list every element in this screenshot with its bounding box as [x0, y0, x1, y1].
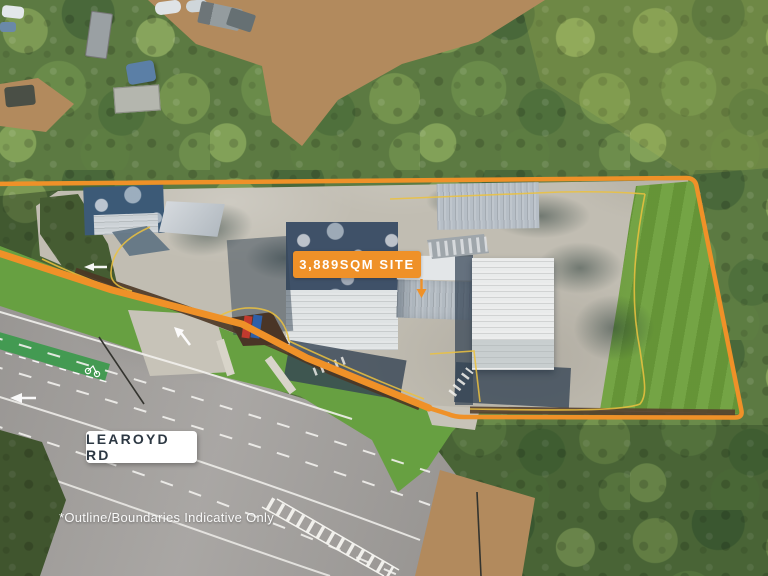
- yellow-line-frontage: [289, 341, 424, 399]
- footpath: [268, 358, 293, 392]
- light-pole: [477, 492, 481, 576]
- site-arrow: [84, 263, 107, 271]
- linework-overlay: [0, 0, 768, 576]
- pedestrian-crossing: [452, 370, 470, 394]
- yellow-line-west-corner: [111, 227, 150, 291]
- median-island-edge: [262, 507, 384, 576]
- label-leader-arrowhead: [417, 289, 427, 298]
- aerial-photo: 3,889SQM SITE LEAROYD RD *Outline/Bounda…: [0, 0, 768, 576]
- site-area-label: 3,889SQM SITE: [293, 251, 421, 278]
- yellow-line-north: [390, 192, 645, 199]
- yellow-line-lawn-curb: [470, 194, 645, 410]
- road-name-label: LEAROYD RD: [86, 431, 197, 463]
- disclaimer-text: *Outline/Boundaries Indicative Only: [59, 510, 274, 525]
- garden-bed-south: [470, 410, 735, 413]
